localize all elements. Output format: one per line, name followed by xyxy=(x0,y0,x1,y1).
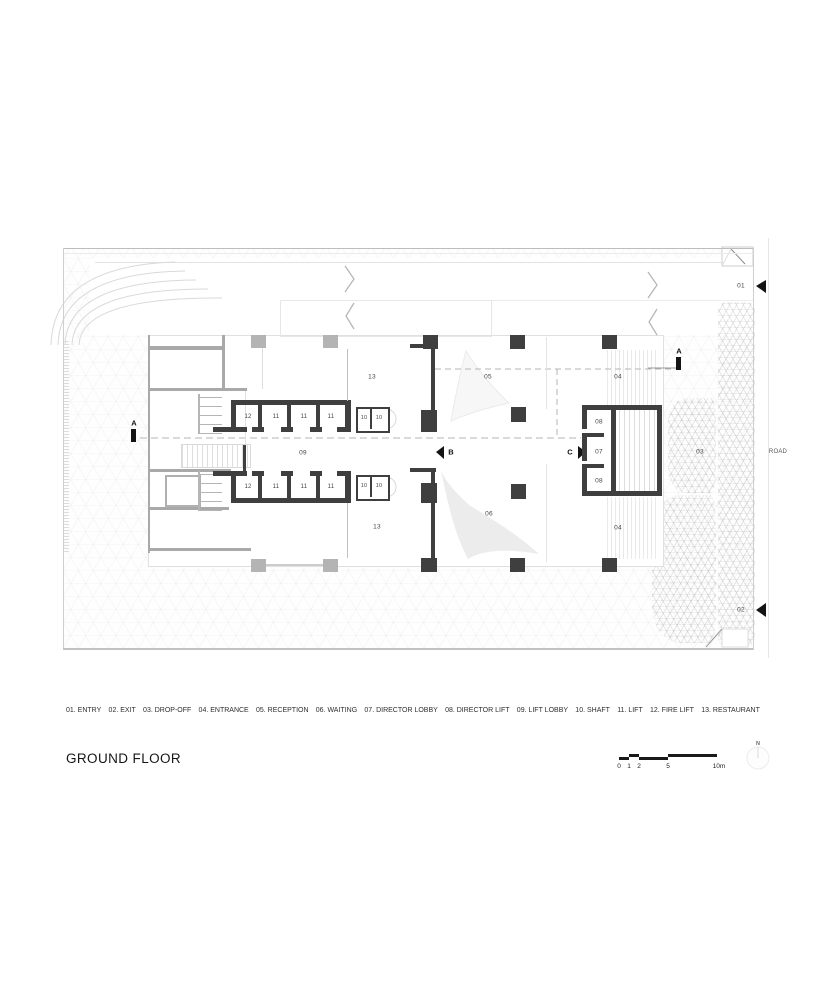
lane-chevron-icons xyxy=(345,266,657,335)
legend-item: 11. LIFT xyxy=(617,707,643,714)
floor-pattern-shape-upper xyxy=(451,351,509,421)
column-gray xyxy=(251,559,266,572)
driveway-arcs xyxy=(51,262,222,345)
room-label-director-lift-top: 08 xyxy=(595,419,603,426)
section-marker-b: B xyxy=(448,448,453,457)
linework-layer xyxy=(0,0,828,1000)
legend-item: 12. FIRE LIFT xyxy=(650,707,694,714)
scale-segment xyxy=(639,757,668,760)
wall-segment xyxy=(149,548,251,551)
exit-arrow-icon xyxy=(756,603,766,617)
lift-door-jamb xyxy=(213,427,247,432)
exit-gate xyxy=(706,629,748,647)
shaft-divider xyxy=(370,407,372,429)
shaft-label: 10 xyxy=(376,415,383,421)
wall-segment xyxy=(222,335,225,390)
legend-item: 06. WAITING xyxy=(316,707,357,714)
column xyxy=(421,483,437,503)
stair-flight xyxy=(181,444,251,468)
service-room xyxy=(165,475,201,507)
core-wall xyxy=(582,468,587,496)
lift-door-jamb xyxy=(281,471,293,476)
lobby-wall xyxy=(431,468,435,560)
legend-item: 09. LIFT LOBBY xyxy=(517,707,568,714)
shaft-label: 10 xyxy=(361,483,368,489)
room-label-entrance-bottom: 04 xyxy=(614,525,622,532)
core-wall xyxy=(582,436,587,461)
core-wall xyxy=(582,464,604,468)
glass-line xyxy=(347,349,348,401)
room-label-director-lift-bottom: 08 xyxy=(595,478,603,485)
lift-label: 11 xyxy=(273,414,280,420)
lift-label: 11 xyxy=(328,414,335,420)
legend-item: 08. DIRECTOR LIFT xyxy=(445,707,509,714)
lift-door-jamb xyxy=(337,427,351,432)
room-label-reception: 05 xyxy=(484,374,492,381)
shaft-divider xyxy=(370,475,372,497)
core-wall xyxy=(582,405,662,410)
glass-line xyxy=(546,464,547,562)
legend-item: 05. RECEPTION xyxy=(256,707,309,714)
section-a-right-bar xyxy=(676,357,681,370)
lift-bank-wall xyxy=(231,400,351,405)
column xyxy=(421,558,437,572)
lift-divider xyxy=(258,405,262,427)
legend-item: 02. EXIT xyxy=(109,707,136,714)
section-marker-a-right: A xyxy=(676,347,681,356)
lift-label: 11 xyxy=(273,484,280,490)
column xyxy=(511,484,526,499)
lift-door-jamb xyxy=(337,471,351,476)
scale-label: 10m xyxy=(713,763,726,770)
boundary-left xyxy=(63,248,64,650)
column xyxy=(602,558,617,572)
room-label-waiting: 06 xyxy=(485,511,493,518)
column xyxy=(510,558,525,572)
core-wall xyxy=(582,433,604,437)
wall-segment xyxy=(148,335,150,553)
stair-run xyxy=(198,471,222,511)
section-marker-a-left: A xyxy=(131,419,136,428)
entry-gate xyxy=(722,247,753,266)
wall-segment xyxy=(149,346,225,350)
lift-label-fire: 12 xyxy=(244,484,251,490)
lift-label: 11 xyxy=(328,484,335,490)
room-label-entrance-top: 04 xyxy=(614,374,622,381)
wall-segment xyxy=(243,445,246,472)
legend-item: 01. ENTRY xyxy=(66,707,101,714)
scale-label: 2 xyxy=(637,763,641,770)
column xyxy=(511,407,526,422)
glass-line xyxy=(347,503,348,558)
column xyxy=(602,335,617,349)
room-label-drop-off: 03 xyxy=(696,449,704,456)
room-label-exit: 02 xyxy=(737,607,745,614)
legend-item: 10. SHAFT xyxy=(575,707,610,714)
lift-door-jamb xyxy=(252,471,264,476)
column xyxy=(421,410,437,432)
north-arrow-icon xyxy=(747,747,769,769)
lift-label: 11 xyxy=(301,414,308,420)
room-label-director-lobby: 07 xyxy=(595,449,603,456)
lobby-wall xyxy=(431,344,435,412)
shaft-label: 10 xyxy=(376,483,383,489)
shaft-label: 10 xyxy=(361,415,368,421)
legend-item: 04. ENTRANCE xyxy=(199,707,249,714)
core-stair xyxy=(619,409,656,492)
lift-divider xyxy=(316,405,320,427)
boundary-right xyxy=(753,248,754,650)
column xyxy=(510,335,525,349)
road-label: ROAD xyxy=(769,449,787,455)
lift-door-jamb xyxy=(281,427,293,432)
column-gray xyxy=(251,335,266,348)
room-label-lift-lobby: 09 xyxy=(299,450,307,457)
section-b-triangle-icon xyxy=(436,446,444,459)
column-gray xyxy=(323,559,338,572)
legend-row: 01. ENTRY 02. EXIT 03. DROP-OFF 04. ENTR… xyxy=(66,707,760,714)
floor-plan-sheet: 13 05 04 08 07 08 04 06 13 09 03 01 02 R… xyxy=(0,0,828,1000)
legend-item: 03. DROP-OFF xyxy=(143,707,191,714)
lift-door-jamb xyxy=(310,471,322,476)
legend-item: 13. RESTAURANT xyxy=(701,707,760,714)
legend-item: 07. DIRECTOR LOBBY xyxy=(364,707,437,714)
lift-label-fire: 12 xyxy=(244,414,251,420)
lift-divider xyxy=(316,476,320,498)
scale-label: 0 xyxy=(617,763,621,770)
room-label-restaurant-bottom: 13 xyxy=(373,524,381,531)
boundary-top-inner xyxy=(63,253,754,254)
lift-divider xyxy=(258,476,262,498)
core-wall xyxy=(582,405,587,429)
north-label: N xyxy=(756,741,760,747)
core-wall xyxy=(657,405,662,496)
section-marker-c: C xyxy=(567,448,572,457)
lift-divider xyxy=(287,405,291,427)
boundary-bottom xyxy=(63,648,754,650)
entry-arrow-icon xyxy=(756,280,766,293)
wall-segment xyxy=(149,388,247,391)
core-wall xyxy=(611,405,616,496)
page-title: GROUND FLOOR xyxy=(66,751,181,766)
room-label-entry: 01 xyxy=(737,283,745,290)
column-gray xyxy=(323,335,338,348)
scale-segment xyxy=(619,757,629,760)
column xyxy=(423,335,438,349)
lift-bank-wall xyxy=(231,498,351,503)
lift-divider xyxy=(287,476,291,498)
scale-segment xyxy=(629,754,639,757)
lift-label: 11 xyxy=(301,484,308,490)
boundary-top xyxy=(63,248,754,249)
glass-line xyxy=(546,337,547,409)
road-edge-line xyxy=(768,238,769,658)
scale-label: 1 xyxy=(627,763,631,770)
lift-door-jamb xyxy=(252,427,264,432)
lift-door-jamb xyxy=(213,471,247,476)
section-a-left-bar xyxy=(131,429,136,442)
scale-segment xyxy=(668,754,717,757)
room-label-restaurant-top: 13 xyxy=(368,374,376,381)
core-wall xyxy=(582,491,662,496)
lift-door-jamb xyxy=(310,427,322,432)
scale-label: 5 xyxy=(666,763,670,770)
